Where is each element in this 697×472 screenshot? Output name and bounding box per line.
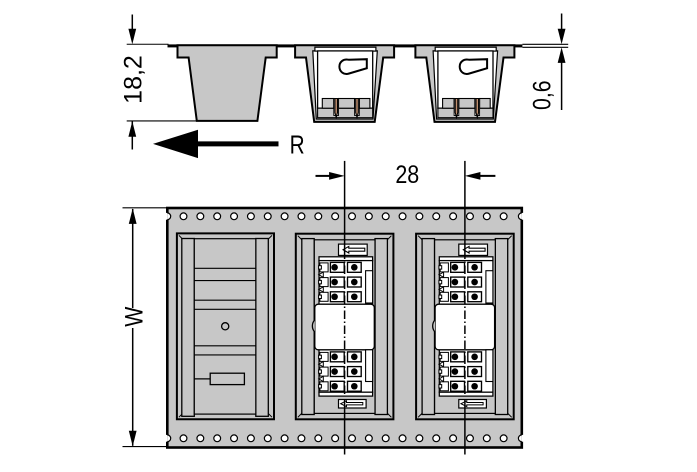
svg-text:W: W [120,307,148,327]
svg-text:R: R [290,130,305,159]
svg-text:18,2: 18,2 [119,55,147,104]
svg-text:28: 28 [395,160,419,188]
svg-text:0,6: 0,6 [528,80,556,110]
